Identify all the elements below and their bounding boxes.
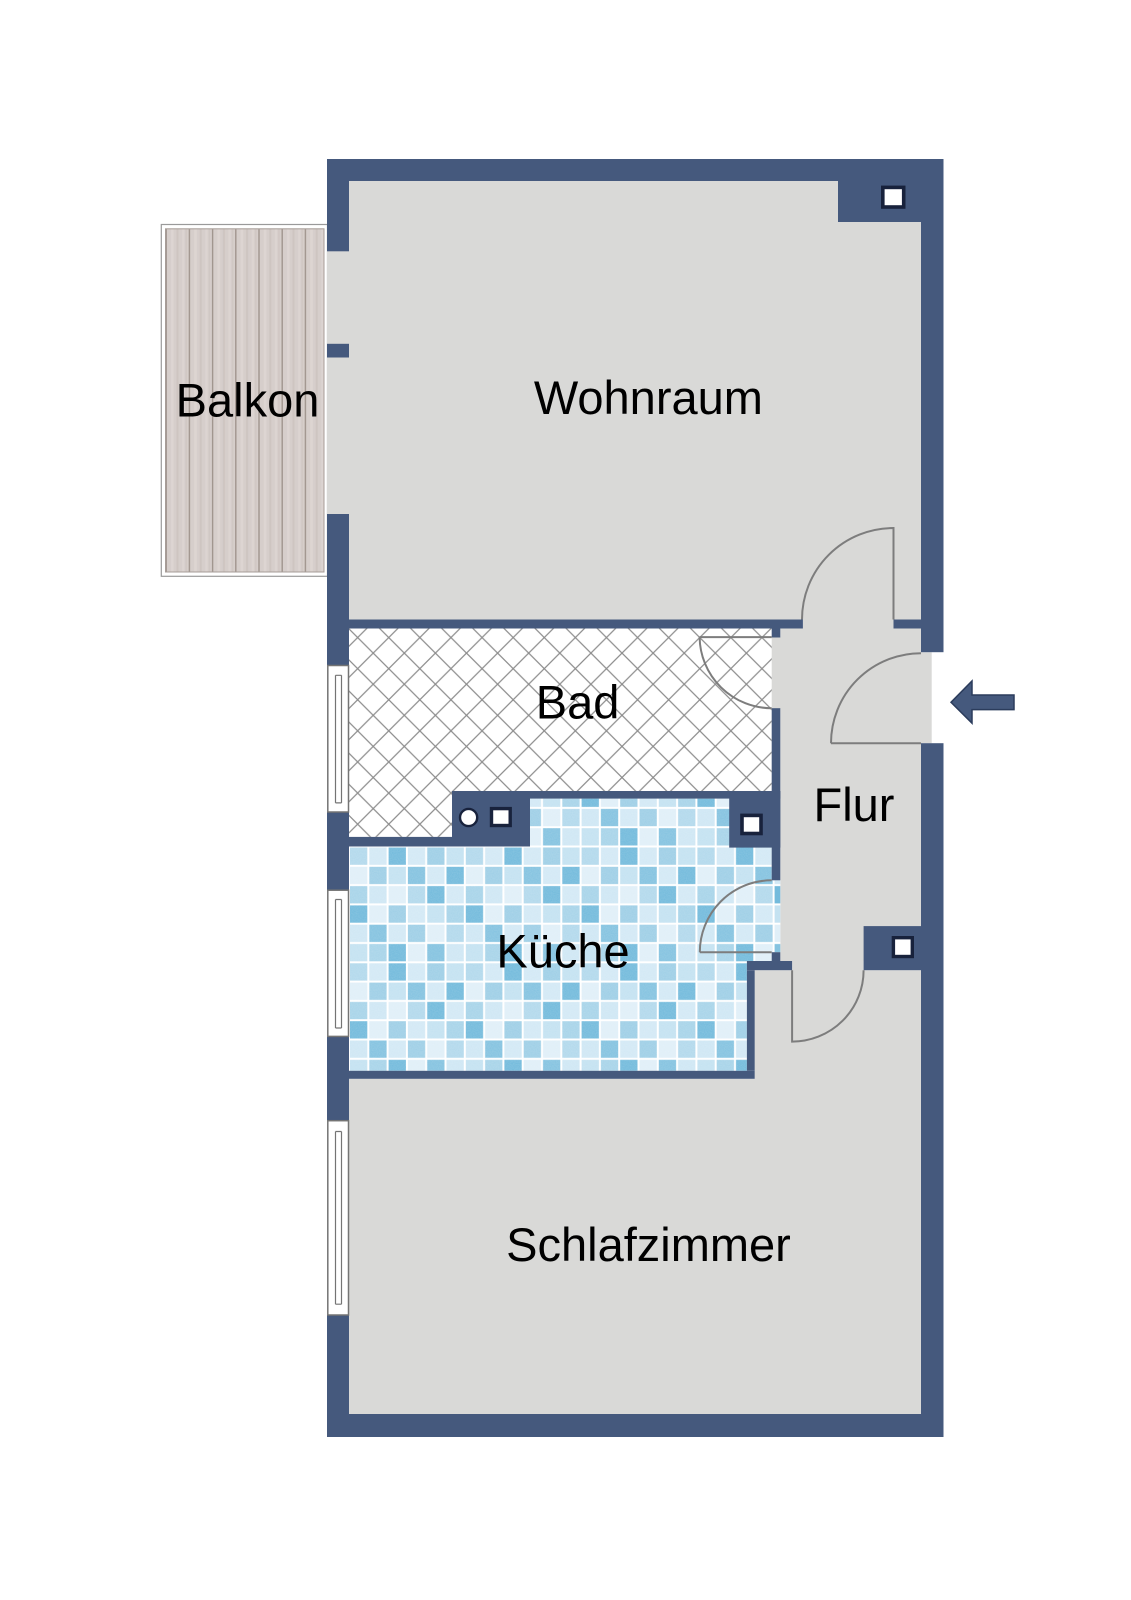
svg-text:Flur: Flur [814, 778, 895, 831]
svg-text:Bad: Bad [536, 676, 620, 729]
svg-text:Schlafzimmer: Schlafzimmer [506, 1218, 791, 1271]
svg-text:Wohnraum: Wohnraum [534, 371, 763, 424]
svg-text:Balkon: Balkon [176, 374, 320, 427]
svg-text:Küche: Küche [496, 924, 629, 977]
